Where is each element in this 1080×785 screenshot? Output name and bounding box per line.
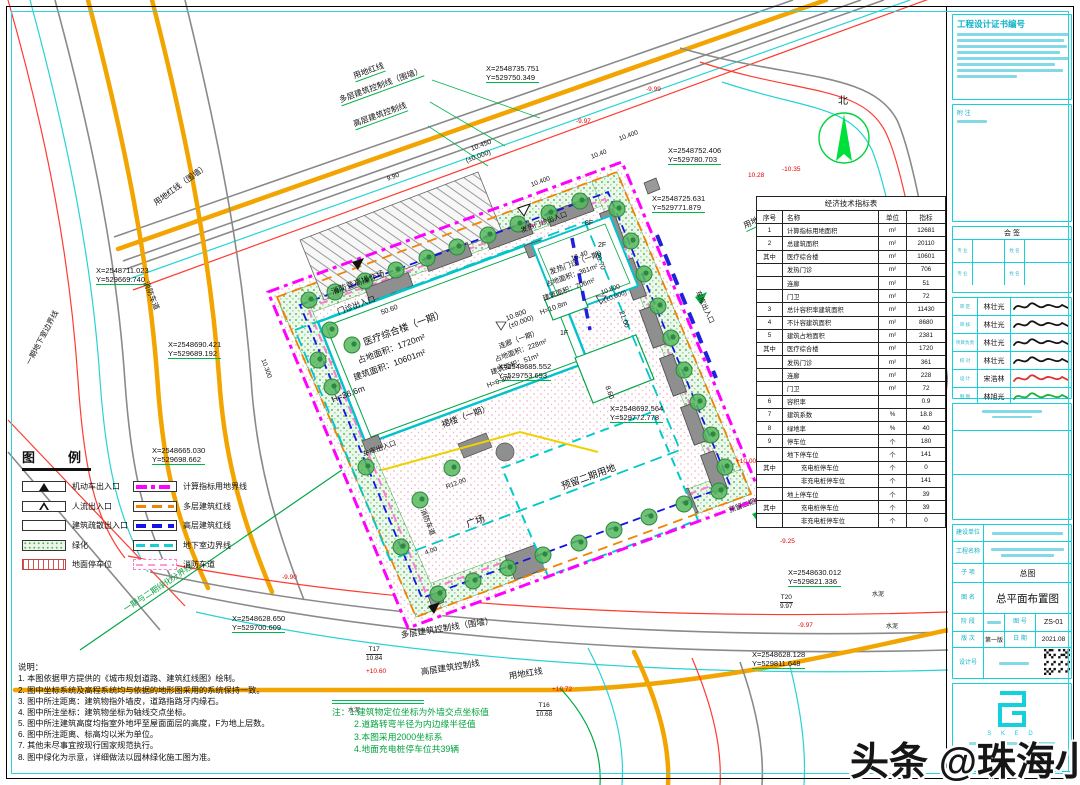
- legend-item-label: 消防车道: [183, 559, 215, 570]
- countersign-cell: [1025, 240, 1065, 262]
- table-cell: 医疗综合楼: [783, 343, 879, 355]
- text-bar: [957, 69, 1063, 72]
- table-row: 5建筑占地面积m²2381: [757, 330, 945, 343]
- legend-item: 机动车出入口: [22, 477, 128, 497]
- version-label: 版 次: [953, 632, 984, 647]
- table-cell: 6: [757, 396, 783, 408]
- table-cell: 180: [907, 435, 945, 447]
- ramp-arrow: [695, 292, 707, 305]
- text-bar: [957, 33, 1069, 36]
- legend-item: 计算指标用地界线: [133, 477, 247, 497]
- drawing-name-label: 图 名: [953, 583, 984, 613]
- signature-role: 设 计: [953, 370, 978, 387]
- north-arrow: [819, 113, 869, 163]
- table-cell: 发热门诊: [783, 264, 879, 276]
- pedestrian-entrance-icon: [39, 502, 49, 510]
- green-note-line: 2.道路转弯半径为内边缘半径值: [354, 718, 489, 730]
- table-row: 发热门诊m²706: [757, 264, 945, 277]
- countersign-title: 会 签: [953, 227, 1071, 240]
- table-cell: 20110: [907, 237, 945, 249]
- text-bar: [957, 39, 1064, 42]
- table-row: 连廊m²51: [757, 277, 945, 290]
- signature-scribble: [1011, 318, 1071, 331]
- table-cell: 非充电桩停车位: [783, 475, 879, 487]
- table-row: 非充电桩停车位个0: [757, 514, 945, 526]
- divider: [332, 703, 424, 704]
- sheet-no-label: 图 号: [1005, 614, 1036, 631]
- signature-role: 审 核: [953, 316, 978, 333]
- table-cell: 706: [907, 264, 945, 276]
- frame-divider: [946, 6, 947, 779]
- countersign-grid: 专 业姓 名专 业姓 名: [953, 240, 1071, 285]
- table-cell: 不计容建筑面积: [783, 317, 879, 329]
- divider: [332, 700, 424, 701]
- legend-swatch-parking: [22, 559, 66, 570]
- qr-code: [1044, 649, 1070, 675]
- text-bar: [957, 120, 987, 123]
- date-value: 2021.08: [1036, 632, 1071, 647]
- table-body: 序号名称单位指标1计算指标用地面积m²126812总建筑面积m²20110其中医…: [757, 211, 945, 527]
- table-cell: 361: [907, 356, 945, 368]
- note-item: 4. 图中所注坐标：建筑物坐标为轴线交点坐标。: [18, 707, 330, 718]
- countersign-row: 专 业姓 名: [953, 240, 1071, 263]
- signature-role: 审 定: [953, 298, 978, 315]
- legend-left-column: 机动车出入口人流出入口建筑疏散出入口绿化地面停车位: [22, 477, 128, 575]
- legend-swatch-motor: [22, 481, 66, 492]
- signature-name: 林壮光: [978, 298, 1011, 315]
- table-cell: 5: [757, 330, 783, 342]
- signature-scribble: [1011, 354, 1071, 367]
- table-cell: 12681: [907, 224, 945, 236]
- table-row: 8绿地率%40: [757, 422, 945, 435]
- table-cell: 11430: [907, 303, 945, 315]
- countersign-box: 会 签 专 业姓 名专 业姓 名: [952, 226, 1072, 293]
- legend-line: [136, 505, 174, 509]
- table-cell: 2: [757, 237, 783, 249]
- table-cell: m²: [879, 290, 907, 302]
- signature-name: 林壮光: [978, 352, 1011, 369]
- table-row: 1计算指标用地面积m²12681: [757, 224, 945, 237]
- text-bar: [957, 57, 1069, 60]
- table-cell: m²: [879, 317, 907, 329]
- table-row: 4不计容建筑面积m²8680: [757, 317, 945, 330]
- table-cell: 容积率: [783, 396, 879, 408]
- table-cell: [757, 290, 783, 302]
- table-cell: 发热门诊: [783, 356, 879, 368]
- table-title: 经济技术指标表: [757, 197, 945, 211]
- table-cell: 228: [907, 369, 945, 381]
- project-label: 工程名称: [953, 542, 984, 563]
- table-row: 2总建筑面积m²20110: [757, 237, 945, 250]
- table-cell: [757, 264, 783, 276]
- countersign-cell: 姓 名: [1005, 240, 1025, 262]
- table-cell: 9: [757, 435, 783, 447]
- table-cell: 0.9: [907, 396, 945, 408]
- table-cell: m²: [879, 369, 907, 381]
- table-cell: 个: [879, 501, 907, 513]
- table-row: 其中医疗综合楼m²10601: [757, 251, 945, 264]
- note-item: 3. 图中所注距离：建筑物指外墙皮，道路指路牙内缘石。: [18, 696, 330, 707]
- version-value: 第一版: [984, 632, 1005, 647]
- notes-title: 说明：: [18, 662, 330, 673]
- legend-swatch-fire: [133, 559, 177, 570]
- table-cell: m²: [879, 343, 907, 355]
- legend-item: 消防车道: [133, 555, 247, 575]
- table-cell: 总建筑面积: [783, 237, 879, 249]
- text-bar: [987, 621, 1001, 624]
- text-bar: [992, 532, 1063, 535]
- table-cell: 个: [879, 462, 907, 474]
- table-cell: 39: [907, 501, 945, 513]
- countersign-cell: [973, 263, 1005, 285]
- title-block: 建设单位 工程名称 子 项 总图 图 名 总平面布置图 阶 段: [952, 524, 1072, 679]
- seal-box: [952, 403, 1072, 520]
- remark-box: 附 注: [952, 104, 1072, 222]
- table-cell: 51: [907, 277, 945, 289]
- legend-item: 地面停车位: [22, 555, 128, 575]
- table-cell: [757, 277, 783, 289]
- table-cell: m²: [879, 224, 907, 236]
- note-item: 8. 图中绿化为示意，详细做法以园林绿化施工图为准。: [18, 752, 330, 763]
- signature-name: 宋浩林: [978, 370, 1011, 387]
- table-cell: 8680: [907, 317, 945, 329]
- countersign-cell: [1025, 263, 1065, 285]
- table-cell: 个: [879, 488, 907, 500]
- signature-box: 审 定林壮光审 核林壮光项目负责林壮光校 对林壮光设 计宋浩林制 图林旭光: [952, 297, 1072, 399]
- table-cell: 40: [907, 422, 945, 434]
- title-column: 工程设计证书编号 附 注 会 签 专 业姓 名专 业姓 名 审 定林壮光审 核林…: [950, 0, 1076, 785]
- legend-swatch-org: [133, 501, 177, 512]
- legend-item-label: 计算指标用地界线: [183, 481, 247, 492]
- table-cell: 个: [879, 475, 907, 487]
- signature-row: 项目负责林壮光: [953, 334, 1071, 352]
- signature-row: 审 核林壮光: [953, 316, 1071, 334]
- notes-items: 1. 本图依据甲方提供的《城市规划道路、建筑红线图》绘制。2. 图中坐标系统及高…: [18, 673, 330, 762]
- drawing-sheet: 用地红线多层建筑控制线（围墙）高层建筑控制线X=2548735.751 Y=52…: [0, 0, 1080, 785]
- table-cell: 个: [879, 435, 907, 447]
- table-row: 9停车位个180: [757, 435, 945, 448]
- table-row: 3总计容积率建筑面积m²11430: [757, 303, 945, 316]
- signature-row: 设 计宋浩林: [953, 370, 1071, 388]
- legend-swatch-evac: [22, 520, 66, 531]
- remark-label: 附 注: [957, 108, 1067, 117]
- table-row: 其中医疗综合楼m²1720: [757, 343, 945, 356]
- countersign-cell: 专 业: [953, 240, 973, 262]
- table-cell: 141: [907, 475, 945, 487]
- owner-label: 建设单位: [953, 525, 984, 541]
- text-bar: [1001, 554, 1053, 557]
- green-notes-lines: 注：1.建筑物定位坐标为外墙交点坐标值2.道路转弯半径为内边缘半径值3.本图采用…: [332, 706, 489, 756]
- legend-line: [136, 564, 174, 566]
- table-cell: m²: [879, 382, 907, 394]
- signature-row: 校 对林壮光: [953, 352, 1071, 370]
- table-cell: 个: [879, 448, 907, 460]
- legend-item-label: 人流出入口: [72, 501, 112, 512]
- date-label: 日 期: [1005, 632, 1036, 647]
- table-cell: 39: [907, 488, 945, 500]
- table-cell: 其中: [757, 462, 783, 474]
- table-cell: 建筑系数: [783, 409, 879, 421]
- table-cell: 其中: [757, 251, 783, 263]
- table-row: 门卫m²72: [757, 290, 945, 303]
- table-cell: 0: [907, 462, 945, 474]
- table-cell: 医疗综合楼: [783, 251, 879, 263]
- table-cell: m²: [879, 264, 907, 276]
- table-cell: m²: [879, 356, 907, 368]
- table-cell: 总计容积率建筑面积: [783, 303, 879, 315]
- design-no-label: 设计号: [953, 648, 984, 678]
- table-cell: %: [879, 422, 907, 434]
- legend-swatch-mag: [133, 481, 177, 492]
- table-cell: 0: [907, 514, 945, 526]
- table-row: 发热门诊m²361: [757, 356, 945, 369]
- table-cell: [757, 488, 783, 500]
- text-bar: [991, 548, 1065, 551]
- signature-name: 林壮光: [978, 316, 1011, 333]
- note-item: 1. 本图依据甲方提供的《城市规划道路、建筑红线图》绘制。: [18, 673, 330, 684]
- legend-title: 图 例: [22, 447, 91, 471]
- table-cell: m²: [879, 303, 907, 315]
- table-cell: [757, 382, 783, 394]
- subitem-label: 子 项: [953, 564, 984, 582]
- table-cell: 非充电桩停车位: [783, 514, 879, 526]
- legend-item: 建筑疏散出入口: [22, 516, 128, 536]
- table-cell: 其中: [757, 501, 783, 513]
- table-cell: 充电桩停车位: [783, 462, 879, 474]
- table-cell: 计算指标用地面积: [783, 224, 879, 236]
- legend-line: [136, 485, 174, 489]
- table-cell: 绿地率: [783, 422, 879, 434]
- green-note-line: 4.地面充电桩停车位共39辆: [354, 743, 489, 755]
- legend-swatch-green: [22, 540, 66, 551]
- certificate-box: 工程设计证书编号: [952, 14, 1072, 100]
- vehicle-entrance-icon: [39, 483, 49, 491]
- legend-swatch-cyn: [133, 540, 177, 551]
- text-bar: [957, 75, 1017, 78]
- legend-item: 绿化: [22, 536, 128, 556]
- company-logo-icon: [992, 689, 1032, 729]
- table-row: 地下停车位个141: [757, 448, 945, 461]
- text-bar: [957, 45, 1067, 48]
- certificate-text-lines: [957, 33, 1067, 77]
- signature-name: 林壮光: [978, 334, 1011, 351]
- gatehouse: [644, 178, 660, 194]
- green-note-line: 3.本图采用2000坐标系: [354, 731, 489, 743]
- note-item: 2. 图中坐标系统及高程系统均与依据的地形图采用的系统保持一致。: [18, 685, 330, 696]
- table-cell: 序号: [757, 211, 783, 223]
- legend-item: 高层建筑红线: [133, 516, 247, 536]
- table-cell: 18.8: [907, 409, 945, 421]
- text-bar: [982, 410, 1042, 413]
- green-note-line: 注：1.建筑物定位坐标为外墙交点坐标值: [332, 706, 489, 718]
- table-cell: [757, 475, 783, 487]
- table-cell: m²: [879, 251, 907, 263]
- note-item: 7. 其他未尽事宜按现行国家规范执行。: [18, 740, 330, 751]
- legend-item: 地下室边界线: [133, 536, 247, 556]
- countersign-cell: 专 业: [953, 263, 973, 285]
- table-cell: [757, 448, 783, 460]
- table-cell: 72: [907, 382, 945, 394]
- table-row: 地上停车位个39: [757, 488, 945, 501]
- legend-item-label: 建筑疏散出入口: [72, 520, 128, 531]
- green-notes-block: 注：1.建筑物定位坐标为外墙交点坐标值2.道路转弯半径为内边缘半径值3.本图采用…: [332, 700, 489, 756]
- table-row: 连廊m²228: [757, 369, 945, 382]
- stage-label: 阶 段: [953, 614, 984, 631]
- table-cell: 地上停车位: [783, 488, 879, 500]
- table-cell: [757, 369, 783, 381]
- table-cell: m²: [879, 277, 907, 289]
- table-cell: [757, 356, 783, 368]
- drawing-name: 总平面布置图: [984, 583, 1071, 613]
- legend-line: [136, 544, 174, 547]
- countersign-cell: [973, 240, 1005, 262]
- signature-scribble: [1011, 300, 1071, 313]
- table-cell: m²: [879, 237, 907, 249]
- legend-line: [136, 524, 174, 528]
- table-row: 其中充电桩停车位个39: [757, 501, 945, 514]
- legend-item-label: 绿化: [72, 540, 88, 551]
- legend-item: 人流出入口: [22, 497, 128, 517]
- note-item: 5. 图中所注建筑高度均指室外地坪至屋面面层的高度，F为地上层数。: [18, 718, 330, 729]
- table-cell: 充电桩停车位: [783, 501, 879, 513]
- table-cell: [757, 514, 783, 526]
- note-item: 6. 图中所注距离、标高均以米为单位。: [18, 729, 330, 740]
- sheet-no: ZS-01: [1036, 614, 1071, 631]
- signature-row: 审 定林壮光: [953, 298, 1071, 316]
- divider: [953, 430, 1071, 431]
- table-cell: 141: [907, 448, 945, 460]
- legend-right-column: 计算指标用地界线多层建筑红线高层建筑红线地下室边界线消防车道: [133, 477, 247, 575]
- table-header-row: 序号名称单位指标: [757, 211, 945, 224]
- signature-scribble: [1011, 336, 1071, 349]
- table-cell: m²: [879, 330, 907, 342]
- legend-item-label: 多层建筑红线: [183, 501, 231, 512]
- legend-swatch-pedestrian: [22, 501, 66, 512]
- signature-role: 项目负责: [953, 334, 978, 351]
- text-bar: [999, 662, 1029, 665]
- table-cell: %: [879, 409, 907, 421]
- legend-item-label: 地下室边界线: [183, 540, 231, 551]
- table-cell: 8: [757, 422, 783, 434]
- table-cell: 1720: [907, 343, 945, 355]
- divider: [953, 474, 1071, 475]
- table-cell: 建筑占地面积: [783, 330, 879, 342]
- legend-item-label: 机动车出入口: [72, 481, 120, 492]
- table-row: 非充电桩停车位个141: [757, 475, 945, 488]
- table-row: 门卫m²72: [757, 382, 945, 395]
- legend-swatch-blu: [133, 520, 177, 531]
- legend-item: 多层建筑红线: [133, 497, 247, 517]
- table-cell: 单位: [879, 211, 907, 223]
- certificate-title: 工程设计证书编号: [957, 18, 1067, 30]
- table-cell: 连廊: [783, 277, 879, 289]
- table-row: 其中充电桩停车位个0: [757, 462, 945, 475]
- table-cell: 7: [757, 409, 783, 421]
- text-bar: [992, 416, 1032, 419]
- table-row: 6容积率0.9: [757, 396, 945, 409]
- legend: 图 例 机动车出入口人流出入口建筑疏散出入口绿化地面停车位 计算指标用地界线多层…: [22, 447, 91, 471]
- table-cell: [879, 396, 907, 408]
- watermark: 头条 @珠海小凡: [850, 731, 1080, 785]
- table-cell: 连廊: [783, 369, 879, 381]
- table-cell: 指标: [907, 211, 945, 223]
- table-cell: 其中: [757, 343, 783, 355]
- table-cell: 1: [757, 224, 783, 236]
- table-cell: 10601: [907, 251, 945, 263]
- table-cell: 2381: [907, 330, 945, 342]
- table-cell: 4: [757, 317, 783, 329]
- signature-role: 校 对: [953, 352, 978, 369]
- table-cell: 门卫: [783, 290, 879, 302]
- subitem-value: 总图: [984, 564, 1071, 582]
- signature-scribble: [1011, 372, 1071, 385]
- table-cell: 3: [757, 303, 783, 315]
- countersign-row: 专 业姓 名: [953, 263, 1071, 285]
- table-cell: 个: [879, 514, 907, 526]
- table-cell: 停车位: [783, 435, 879, 447]
- countersign-cell: 姓 名: [1005, 263, 1025, 285]
- notes-block: 说明： 1. 本图依据甲方提供的《城市规划道路、建筑红线图》绘制。2. 图中坐标…: [18, 662, 330, 763]
- legend-item-label: 高层建筑红线: [183, 520, 231, 531]
- text-bar: [957, 63, 1055, 66]
- table-row: 7建筑系数%18.8: [757, 409, 945, 422]
- signature-scribble: [1011, 390, 1071, 403]
- table-cell: 地下停车位: [783, 448, 879, 460]
- table-cell: 72: [907, 290, 945, 302]
- table-cell: 门卫: [783, 382, 879, 394]
- legend-item-label: 地面停车位: [72, 559, 112, 570]
- text-bar: [957, 51, 1060, 54]
- economic-indicator-table: 经济技术指标表 序号名称单位指标1计算指标用地面积m²126812总建筑面积m²…: [756, 196, 946, 528]
- table-cell: 名称: [783, 211, 879, 223]
